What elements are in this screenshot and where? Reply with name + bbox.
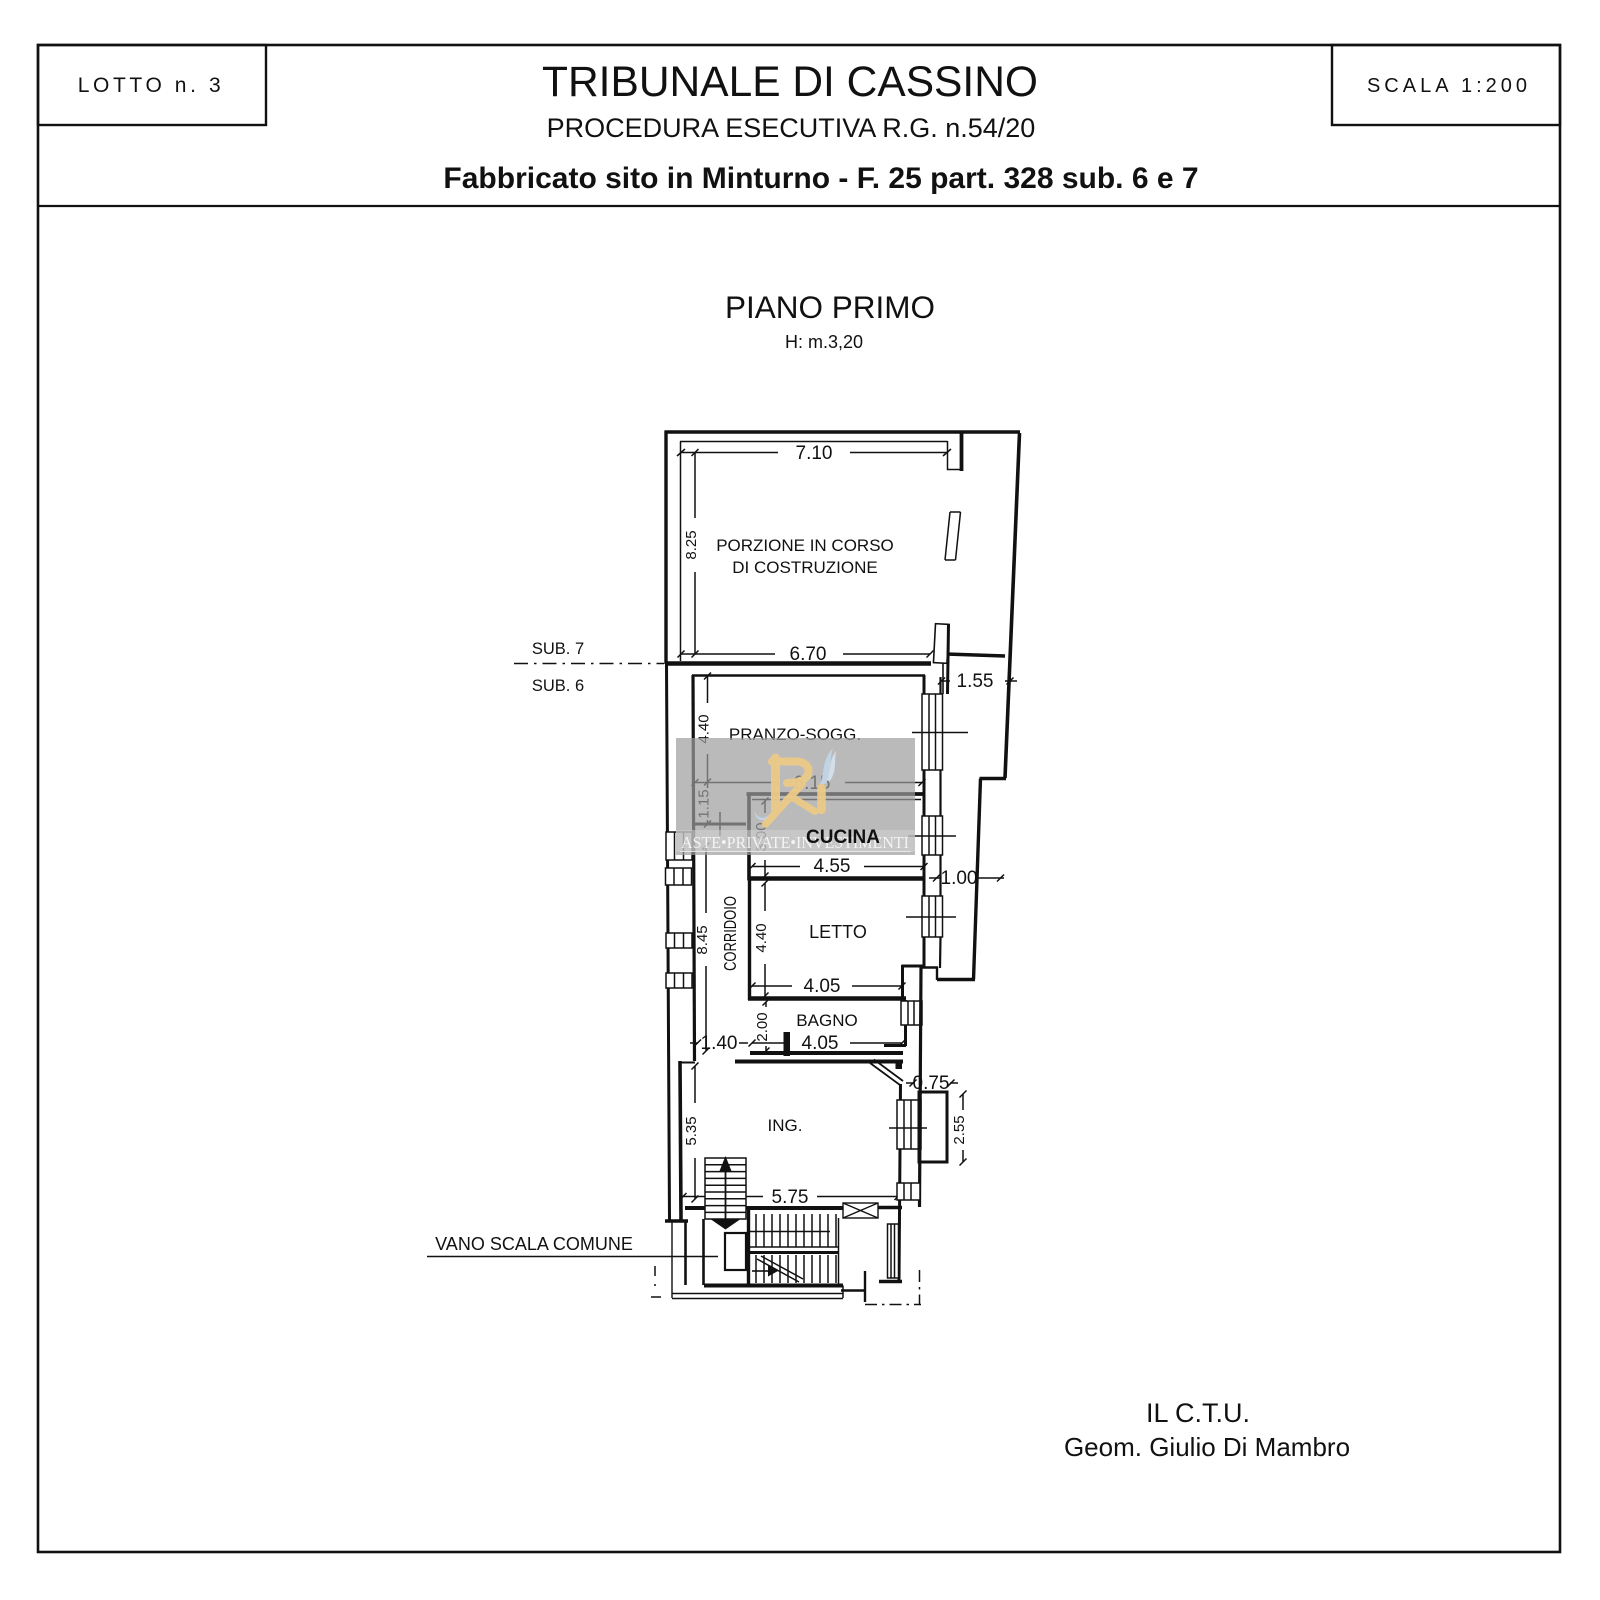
svg-text:PORZIONE IN CORSO: PORZIONE IN CORSO — [716, 536, 894, 555]
svg-text:CUCINA: CUCINA — [806, 827, 880, 848]
svg-text:1.40: 1.40 — [701, 1033, 738, 1054]
svg-text:5.75: 5.75 — [772, 1187, 809, 1208]
svg-text:TRIBUNALE DI CASSINO: TRIBUNALE DI CASSINO — [542, 59, 1038, 106]
svg-text:PIANO PRIMO: PIANO PRIMO — [725, 289, 935, 325]
svg-text:Geom. Giulio Di Mambro: Geom. Giulio Di Mambro — [1064, 1432, 1350, 1462]
svg-text:7.10: 7.10 — [796, 443, 833, 464]
svg-text:PROCEDURA ESECUTIVA R.G. n.54/: PROCEDURA ESECUTIVA R.G. n.54/20 — [547, 113, 1036, 143]
svg-text:2.55: 2.55 — [951, 1115, 968, 1144]
svg-text:VANO SCALA COMUNE: VANO SCALA COMUNE — [435, 1234, 633, 1254]
svg-text:8.45: 8.45 — [694, 925, 711, 954]
svg-text:4.55: 4.55 — [814, 856, 851, 877]
svg-text:1.55: 1.55 — [957, 671, 994, 692]
svg-text:SUB. 7: SUB. 7 — [532, 640, 584, 658]
svg-text:5.35: 5.35 — [683, 1116, 700, 1145]
svg-text:SUB. 6: SUB. 6 — [532, 677, 584, 695]
svg-text:4.05: 4.05 — [804, 976, 841, 997]
svg-text:8.25: 8.25 — [683, 530, 700, 559]
svg-text:6.70: 6.70 — [790, 644, 827, 665]
svg-text:BAGNO: BAGNO — [796, 1011, 857, 1030]
svg-text:ING.: ING. — [768, 1116, 803, 1135]
svg-text:H: m.3,20: H: m.3,20 — [785, 332, 863, 352]
svg-text:4.40: 4.40 — [753, 923, 770, 952]
svg-text:SCALA 1:200: SCALA 1:200 — [1367, 75, 1531, 97]
svg-text:2.00: 2.00 — [754, 1012, 771, 1041]
svg-text:LETTO: LETTO — [809, 922, 867, 942]
svg-text:1.00: 1.00 — [941, 868, 978, 889]
svg-text:4.05: 4.05 — [802, 1033, 839, 1054]
svg-text:IL C.T.U.: IL C.T.U. — [1146, 1398, 1250, 1428]
svg-text:Fabbricato sito in Minturno -: Fabbricato sito in Minturno - F. 25 part… — [443, 162, 1198, 195]
svg-text:DI COSTRUZIONE: DI COSTRUZIONE — [732, 558, 877, 577]
svg-text:LOTTO n. 3: LOTTO n. 3 — [78, 74, 225, 97]
svg-text:CORRIDOIO: CORRIDOIO — [721, 896, 741, 971]
